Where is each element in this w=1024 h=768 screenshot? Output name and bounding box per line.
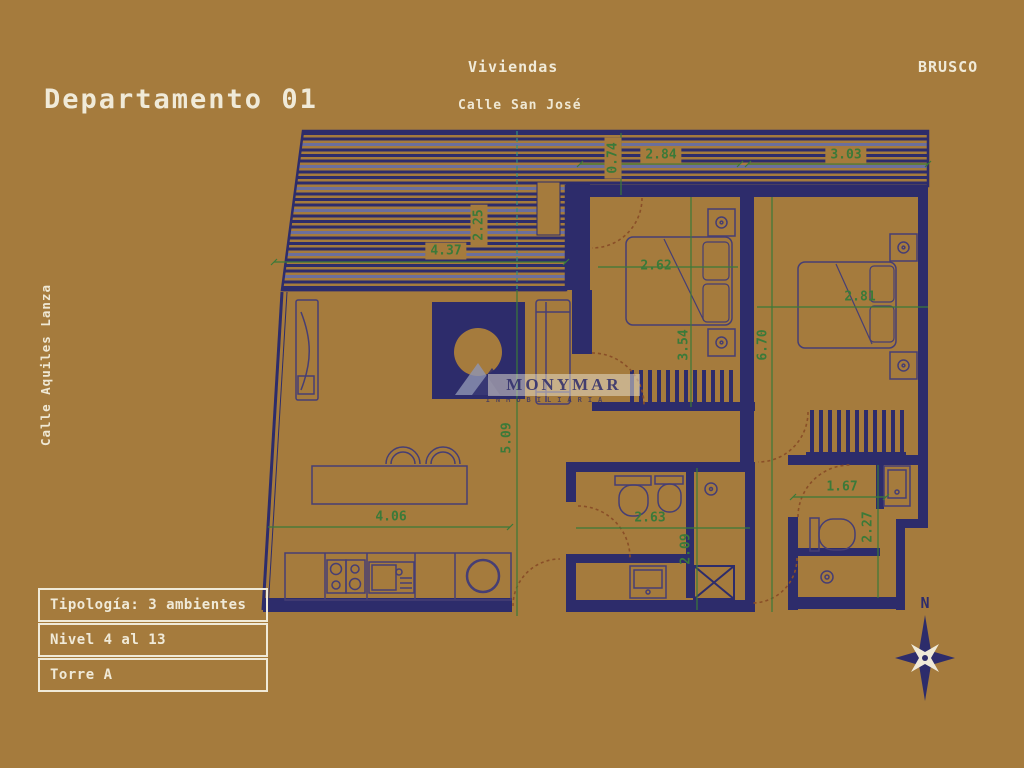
toilet [810, 518, 819, 551]
bedroom2-furniture [798, 234, 917, 457]
street-label-top: Calle San José [458, 98, 582, 113]
compass-north-label: N [920, 594, 929, 612]
wardrobe [806, 410, 906, 455]
viviendas-label: Viviendas [468, 58, 558, 76]
shower-drain [821, 571, 833, 583]
nightstand [708, 329, 735, 356]
bedroom1-furniture [626, 209, 738, 407]
bidet [655, 476, 683, 484]
dim-bedroom2-width-top: 3.03 [825, 147, 866, 164]
dim-bedroom1-width: 2.62 [640, 260, 671, 273]
info-row-nivel: Nivel 4 al 13 [38, 623, 268, 657]
pillow [870, 306, 894, 342]
dim-terrace-width: 4.37 [425, 243, 466, 260]
nightstand [708, 209, 735, 236]
bed [798, 262, 896, 348]
dim-apartment-depth: 6.70 [757, 329, 770, 360]
toilet [615, 476, 651, 485]
nightstand [890, 352, 917, 379]
dim-terrace-depth: 2.25 [471, 204, 488, 245]
dim-bathroom1-width: 2.63 [634, 512, 665, 525]
dim-balcony-depth: 0.74 [605, 137, 622, 178]
nightstand [890, 234, 917, 261]
street-label-left: Calle Aquiles Lanza [38, 280, 64, 450]
dim-living-width: 4.06 [375, 511, 406, 524]
cooktop [327, 560, 346, 593]
watermark-band: MONYMAR [488, 374, 640, 396]
pillow [703, 284, 729, 322]
compass-rose [895, 615, 955, 701]
watermark-name: MONYMAR [506, 375, 621, 395]
brand-label: BRUSCO [918, 58, 978, 76]
dim-bedroom2-width: 2.81 [844, 291, 875, 304]
info-row-torre: Torre A [38, 658, 268, 692]
floor-plan-page: Departamento 01 Viviendas BRUSCO Calle S… [0, 0, 1024, 768]
dim-living-depth: 5.09 [501, 422, 514, 453]
dim-bedroom1-width-top: 2.84 [640, 147, 681, 164]
dim-bathroom2-width: 1.67 [826, 481, 857, 494]
watermark-subtitle: INMOBILIARIA [452, 396, 642, 404]
bed [626, 237, 732, 325]
bathroom1-fixtures [615, 476, 734, 599]
dim-bedroom1-depth: 3.54 [678, 329, 691, 360]
info-panel: Tipología: 3 ambientes Nivel 4 al 13 Tor… [38, 588, 268, 693]
page-title: Departamento 01 [44, 84, 318, 115]
dim-bathroom1-depth: 2.09 [680, 533, 693, 564]
pillow [703, 242, 729, 280]
kitchen-counter [285, 553, 511, 600]
info-row-tipologia: Tipología: 3 ambientes [38, 588, 268, 622]
washing-machine [467, 560, 499, 592]
vanity [630, 566, 666, 598]
dim-bathroom2-depth: 2.27 [862, 511, 875, 542]
kitchen-island [312, 466, 467, 504]
wardrobe [630, 370, 738, 407]
